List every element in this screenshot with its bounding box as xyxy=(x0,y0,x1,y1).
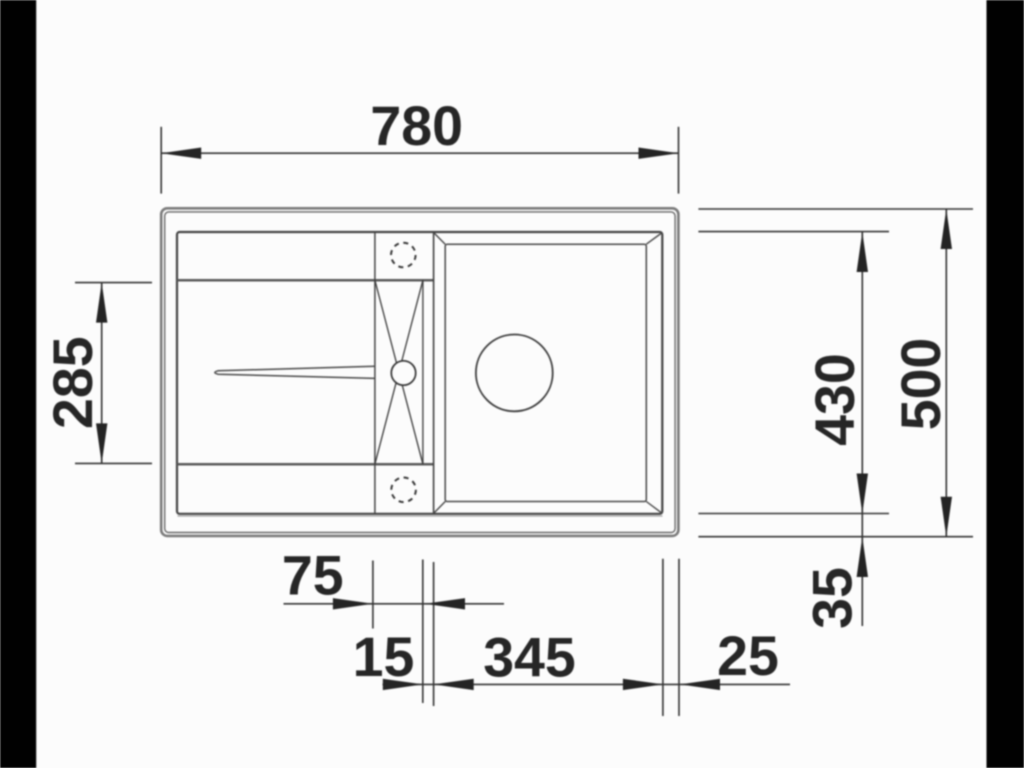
svg-text:430: 430 xyxy=(804,353,866,446)
svg-text:75: 75 xyxy=(282,544,344,606)
svg-text:780: 780 xyxy=(370,95,463,157)
svg-text:500: 500 xyxy=(890,338,952,431)
svg-text:35: 35 xyxy=(802,567,864,629)
svg-text:25: 25 xyxy=(717,625,779,687)
svg-text:345: 345 xyxy=(483,627,576,689)
svg-text:285: 285 xyxy=(42,336,104,429)
svg-text:15: 15 xyxy=(353,626,415,688)
